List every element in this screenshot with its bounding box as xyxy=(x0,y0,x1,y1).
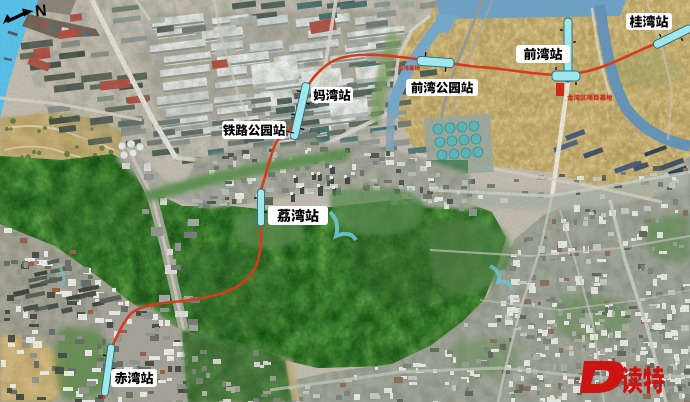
svg-text:N: N xyxy=(34,2,47,20)
